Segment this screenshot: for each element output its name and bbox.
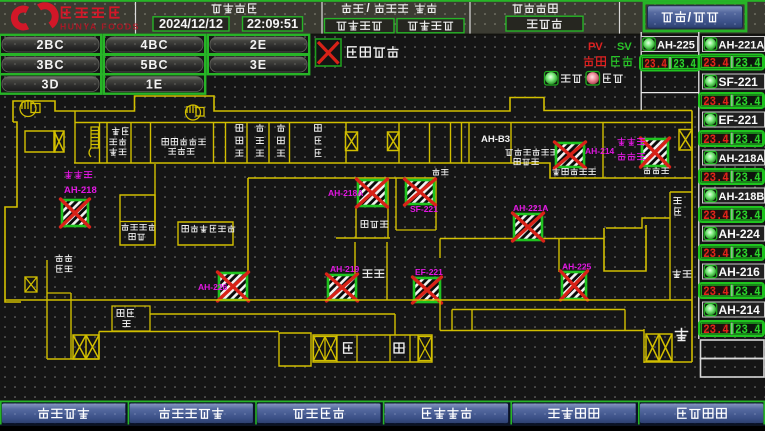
svg-text:23.4: 23.4 xyxy=(735,171,761,185)
svg-text:AH-218: AH-218 xyxy=(64,185,97,196)
svg-text:AH-225: AH-225 xyxy=(657,40,695,52)
svg-text:23.4: 23.4 xyxy=(703,56,729,70)
svg-text:1E: 1E xyxy=(146,77,163,91)
svg-text:AH-226: AH-226 xyxy=(198,282,228,292)
svg-text:AH-216: AH-216 xyxy=(719,265,761,279)
svg-text:AH-B3: AH-B3 xyxy=(481,134,510,145)
svg-text:AH-214: AH-214 xyxy=(719,303,761,317)
svg-text:23.4: 23.4 xyxy=(735,247,761,261)
svg-text:2E: 2E xyxy=(250,38,267,52)
svg-text:23.4: 23.4 xyxy=(703,247,729,261)
svg-text:23.4: 23.4 xyxy=(735,323,761,337)
svg-text:2024/12/12: 2024/12/12 xyxy=(159,16,223,31)
svg-text:AH-218A: AH-218A xyxy=(328,188,363,198)
svg-text:23.4: 23.4 xyxy=(735,95,761,109)
svg-text:23.4: 23.4 xyxy=(673,57,696,71)
svg-text:EF-221: EF-221 xyxy=(415,267,443,277)
svg-text:3D: 3D xyxy=(42,77,60,91)
svg-text:AH-224: AH-224 xyxy=(719,227,761,241)
svg-text:23.4: 23.4 xyxy=(703,95,729,109)
svg-text:23.4: 23.4 xyxy=(735,56,761,70)
svg-text:22:09:51: 22:09:51 xyxy=(247,16,298,31)
svg-text:3E: 3E xyxy=(250,58,267,72)
svg-text:AH-221A: AH-221A xyxy=(513,203,548,213)
svg-text:23.4: 23.4 xyxy=(735,133,761,147)
svg-text:2BC: 2BC xyxy=(36,38,64,52)
svg-text:/: / xyxy=(688,10,692,25)
svg-text:AH-218A: AH-218A xyxy=(719,153,765,165)
svg-text:SF-221: SF-221 xyxy=(410,204,438,214)
svg-text:AH-221A: AH-221A xyxy=(719,40,765,52)
svg-text:AH-214: AH-214 xyxy=(585,146,615,156)
svg-text:AH-225: AH-225 xyxy=(562,262,592,272)
svg-text:4BC: 4BC xyxy=(140,38,168,52)
svg-text:23.4: 23.4 xyxy=(703,323,729,337)
svg-text:23.4: 23.4 xyxy=(735,285,761,299)
svg-text:23.4: 23.4 xyxy=(703,133,729,147)
svg-text:AH-219: AH-219 xyxy=(330,264,360,274)
svg-text:3BC: 3BC xyxy=(36,58,64,72)
svg-text:5BC: 5BC xyxy=(140,58,168,72)
svg-text:SF-221: SF-221 xyxy=(719,75,759,89)
svg-text:SV: SV xyxy=(617,41,632,53)
svg-text:23.4: 23.4 xyxy=(703,171,729,185)
svg-text:23.4: 23.4 xyxy=(735,209,761,223)
svg-text:PV: PV xyxy=(588,41,603,53)
svg-text:23.4: 23.4 xyxy=(703,209,729,223)
svg-text:AH-218B: AH-218B xyxy=(719,191,765,203)
svg-text:EF-221: EF-221 xyxy=(719,113,759,127)
svg-text:23.4: 23.4 xyxy=(703,285,729,299)
svg-text:HUNYA FOODS: HUNYA FOODS xyxy=(60,22,140,32)
svg-text:23.4: 23.4 xyxy=(644,57,667,71)
